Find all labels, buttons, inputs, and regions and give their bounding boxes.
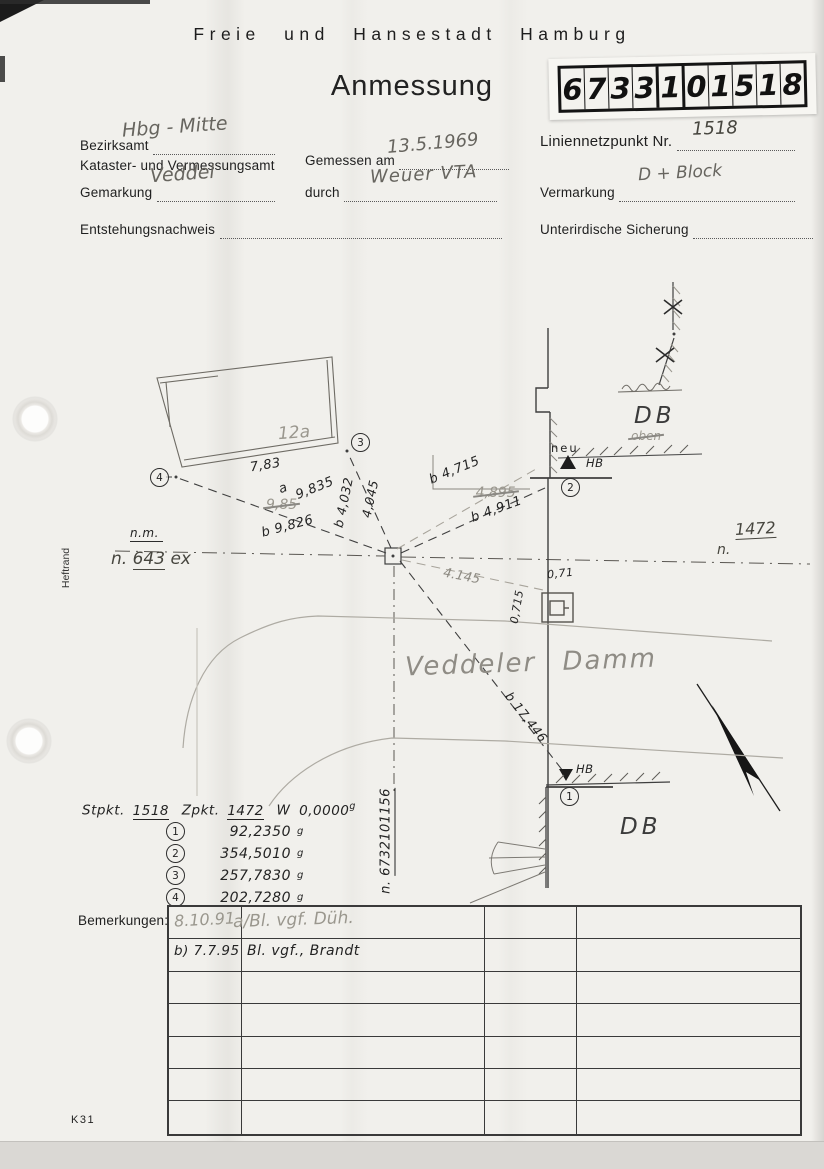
- measurement-9-835: 9,835: [294, 474, 336, 503]
- bemerkungen-table: 8.10.91 a/Bl. vgf. Düh. b) 7.7.95 Bl. vg…: [167, 905, 802, 1136]
- vermarkung-value: D + Block: [638, 161, 723, 185]
- measurement-b-17-446: b 17,446: [502, 689, 551, 745]
- zpkt-value: 1472: [227, 803, 263, 820]
- stpkt-value: 1518: [133, 803, 169, 820]
- sheet-number-digit: 1: [709, 65, 734, 107]
- building-outline: [157, 357, 338, 467]
- n1472-value: 1472: [735, 518, 777, 540]
- angle-point-2: 2: [166, 844, 185, 863]
- form-code-label: K31: [71, 1114, 95, 1126]
- db-top-label: DB: [634, 403, 676, 429]
- punch-hole-top: [12, 396, 58, 442]
- point-4-marker: 4: [150, 468, 169, 487]
- scan-edge-artifact-bottom: [0, 1141, 824, 1169]
- measurement-7-83: 7,83: [249, 456, 282, 476]
- angle-header-row: Stpkt. 1518 Zpkt. 1472 W 0,0000g: [82, 801, 356, 819]
- measurement-a-label: a: [277, 480, 290, 497]
- measurement-0-71: 0,71: [546, 566, 574, 582]
- angle-row-1: 1 92,2350g: [166, 822, 304, 841]
- n1472-prefix: n.: [717, 542, 730, 558]
- remark-2-date: b) 7.7.95: [174, 943, 240, 959]
- sheet-number-digit: 5: [733, 64, 758, 106]
- bemerkungen-label: Bemerkungen:: [78, 913, 168, 928]
- angle-value-1: 92,2350: [191, 824, 291, 840]
- stpkt-label: Stpkt.: [82, 803, 125, 819]
- point-1-marker: 1: [560, 787, 579, 806]
- angle-point-3: 3: [166, 866, 185, 885]
- vermarkung-line: [619, 187, 795, 202]
- entstehungsnachweis-label: Entstehungsnachweis: [80, 222, 215, 237]
- gon-unit: g: [349, 801, 356, 812]
- building-label: 12a: [277, 422, 310, 444]
- punch-hole-bottom: [6, 718, 52, 764]
- gemarkung-label: Gemarkung: [80, 185, 152, 200]
- hb-triangle-bottom: [559, 769, 573, 781]
- measurement-4-045: 4,045: [359, 478, 382, 519]
- street-name-label: Veddeler Damm: [405, 644, 658, 683]
- liniennetzpunkt-label: Liniennetzpunkt Nr.: [540, 133, 672, 150]
- liniennetzpunkt-value: 1518: [692, 117, 739, 140]
- remark-1-date: 8.10.91: [174, 908, 236, 930]
- sheet-number-cells: 6 7 3 3 1 0 1 5 1 8: [557, 60, 807, 113]
- unterirdische-sicherung-label: Unterirdische Sicherung: [540, 222, 689, 237]
- w-value: 0,0000: [299, 803, 349, 819]
- field-unterirdische-sicherung: Unterirdische Sicherung: [540, 221, 813, 239]
- ground-scribble: [622, 383, 670, 391]
- zpkt-label: Zpkt.: [182, 803, 220, 819]
- north-arrow: [697, 684, 780, 811]
- measurement-0-715: 0,715: [508, 589, 527, 625]
- n643-label: n. 643 ex: [111, 549, 191, 569]
- field-entstehungsnachweis: Entstehungsnachweis: [80, 221, 502, 239]
- sheet-number-digit: 1: [659, 66, 686, 108]
- remark-1-text: a/Bl. vgf. Düh.: [233, 908, 354, 932]
- sheet-number-sticker: 6 7 3 3 1 0 1 5 1 8: [548, 53, 816, 120]
- measurement-4-145: 4.145: [442, 566, 481, 588]
- angle-row-3: 3 257,7830g: [166, 866, 304, 885]
- neu-label: neu: [551, 441, 579, 455]
- measurement-9-85-struck: 9,85: [266, 497, 297, 513]
- vermarkung-label: Vermarkung: [540, 185, 615, 200]
- road-edges: [183, 616, 783, 806]
- gemarkung-line: [157, 187, 275, 202]
- hb-bottom-label: HB: [576, 762, 594, 776]
- point-2-marker: 2: [561, 478, 580, 497]
- sheet-number-digit: 8: [781, 63, 805, 105]
- hb-top-label: HB: [586, 456, 604, 470]
- durch-label: durch: [305, 185, 340, 200]
- n6732101156-label: n. 6732101156: [386, 841, 492, 856]
- oben-struck-label: oben: [631, 429, 661, 443]
- field-gemarkung: Gemarkung: [80, 184, 275, 202]
- measurement-b-9-826: b 9,826: [260, 512, 315, 540]
- scan-edge-artifact-top: [0, 0, 150, 4]
- field-bezirksamt: Bezirksamt: [80, 137, 275, 155]
- survey-point-marker: [385, 548, 401, 564]
- field-liniennetzpunkt: Liniennetzpunkt Nr.: [540, 133, 795, 151]
- measurement-b-4-715: b 4,715: [427, 454, 482, 488]
- shaft-symbol: [542, 593, 573, 622]
- gemarkung-value: Veddel: [149, 161, 215, 187]
- angle-value-3: 257,7830: [191, 868, 291, 884]
- point-3-marker: 3: [351, 433, 370, 452]
- field-vermarkung: Vermarkung: [540, 184, 795, 202]
- sheet-number-digit: 7: [585, 68, 610, 110]
- bezirksamt-line: [153, 140, 275, 155]
- entstehungsnachweis-line: [220, 224, 502, 239]
- sheet-number-digit: 6: [561, 68, 586, 110]
- sheet-number-digit: 3: [609, 67, 634, 109]
- sheet-number-digit: 0: [685, 65, 710, 107]
- page-title: Freie und Hansestadt Hamburg: [0, 24, 824, 45]
- fence-x-marks: [656, 300, 682, 362]
- sheet-number-digit: 3: [633, 67, 660, 109]
- nm-label: n.m.: [130, 526, 163, 542]
- scanned-survey-document: Heftrand Freie und Hansestadt Hamburg An…: [0, 0, 824, 1169]
- db-bottom-label: DB: [620, 814, 662, 840]
- angle-value-2: 354,5010: [191, 846, 291, 862]
- hb-triangle-top: [560, 455, 576, 469]
- angle-point-1: 1: [166, 822, 185, 841]
- sheet-number-digit: 1: [757, 64, 782, 106]
- remark-2-text: Bl. vgf., Brandt: [247, 943, 360, 959]
- fence-line: [659, 282, 674, 385]
- angle-row-2: 2 354,5010g: [166, 844, 304, 863]
- durch-line: [344, 187, 497, 202]
- field-durch: durch: [305, 184, 497, 202]
- w-label: W: [276, 803, 290, 819]
- paper-edge-shadow: [811, 0, 824, 1169]
- unterirdische-sicherung-line: [693, 224, 813, 239]
- heftrand-label: Heftrand: [66, 568, 106, 580]
- angle-value-4: 202,7280: [191, 890, 291, 906]
